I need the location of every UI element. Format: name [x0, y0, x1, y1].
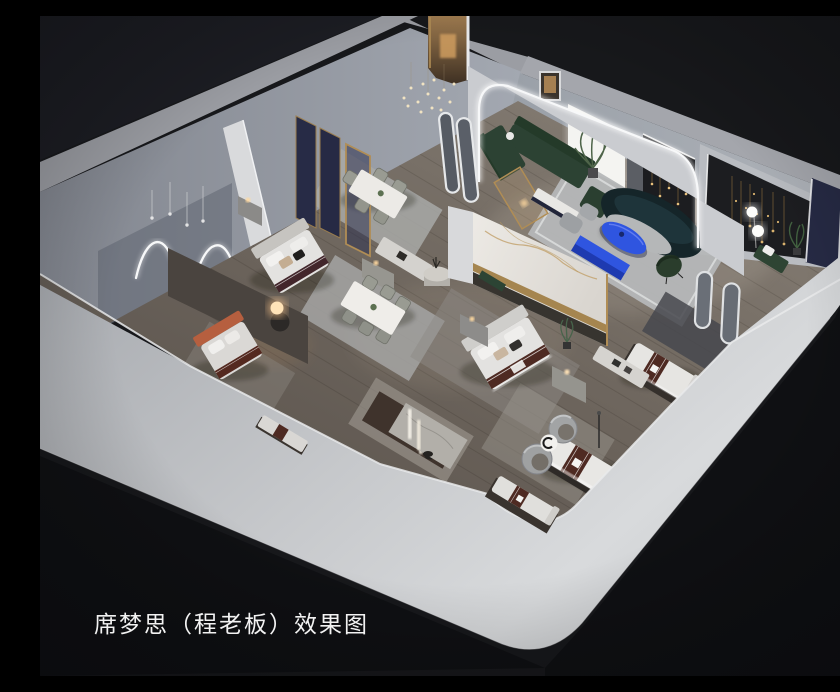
caption: 席梦思（程老板）效果图 [94, 605, 369, 639]
rendering-canvas [40, 16, 840, 676]
showroom-rendering: 席梦思（程老板）效果图 [40, 16, 840, 676]
vignette-overlay [40, 16, 840, 676]
